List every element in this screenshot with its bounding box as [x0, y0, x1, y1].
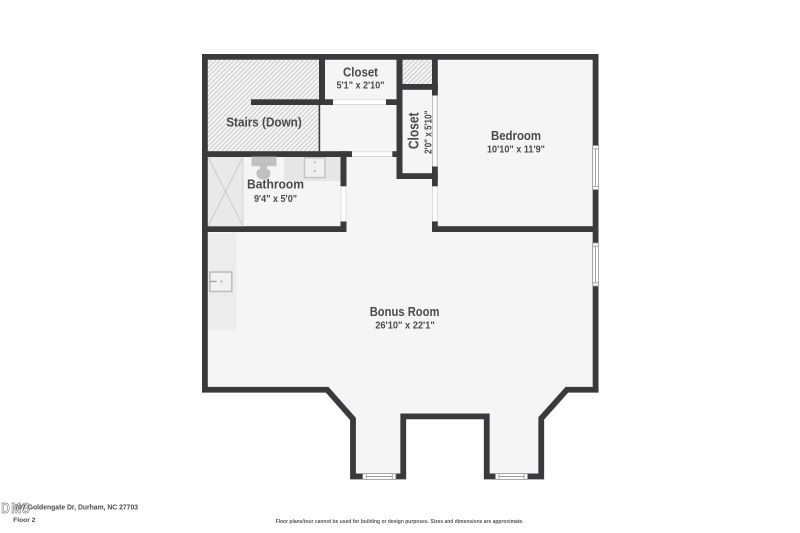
svg-text:5'1" x 2'10": 5'1" x 2'10" [337, 81, 385, 92]
svg-text:DMS: DMS [1, 500, 30, 516]
svg-text:2'0" x 5'10": 2'0" x 5'10" [422, 111, 434, 154]
svg-text:26'10" x 22'1": 26'10" x 22'1" [375, 321, 435, 332]
svg-text:Bedroom: Bedroom [491, 128, 541, 143]
svg-text:Bonus Room: Bonus Room [370, 304, 440, 319]
svg-text:Closet: Closet [343, 64, 379, 79]
svg-text:9'4" x 5'0": 9'4" x 5'0" [254, 194, 297, 205]
svg-text:707 Goldengate Dr, Durham, NC: 707 Goldengate Dr, Durham, NC 27703 [15, 503, 139, 512]
svg-text:Floor plans/tour cannot be use: Floor plans/tour cannot be used for buil… [276, 519, 524, 525]
svg-text:Bathroom: Bathroom [247, 177, 304, 192]
svg-text:10'10" x 11'9": 10'10" x 11'9" [487, 145, 545, 156]
svg-text:Floor 2: Floor 2 [13, 517, 36, 524]
svg-text:Closet: Closet [406, 112, 423, 149]
svg-text:Stairs (Down): Stairs (Down) [226, 114, 302, 129]
